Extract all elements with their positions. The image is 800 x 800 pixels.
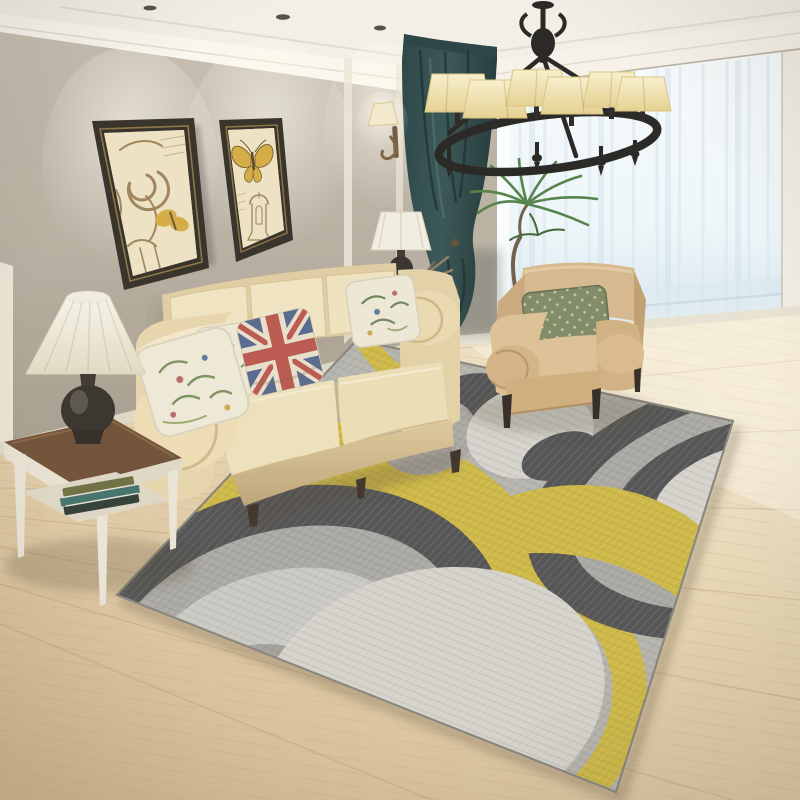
scene-canvas: Bright modern living room staged to show… <box>0 0 800 800</box>
vignette <box>0 0 800 800</box>
living-room-product-photo: Bright modern living room staged to show… <box>0 0 800 800</box>
